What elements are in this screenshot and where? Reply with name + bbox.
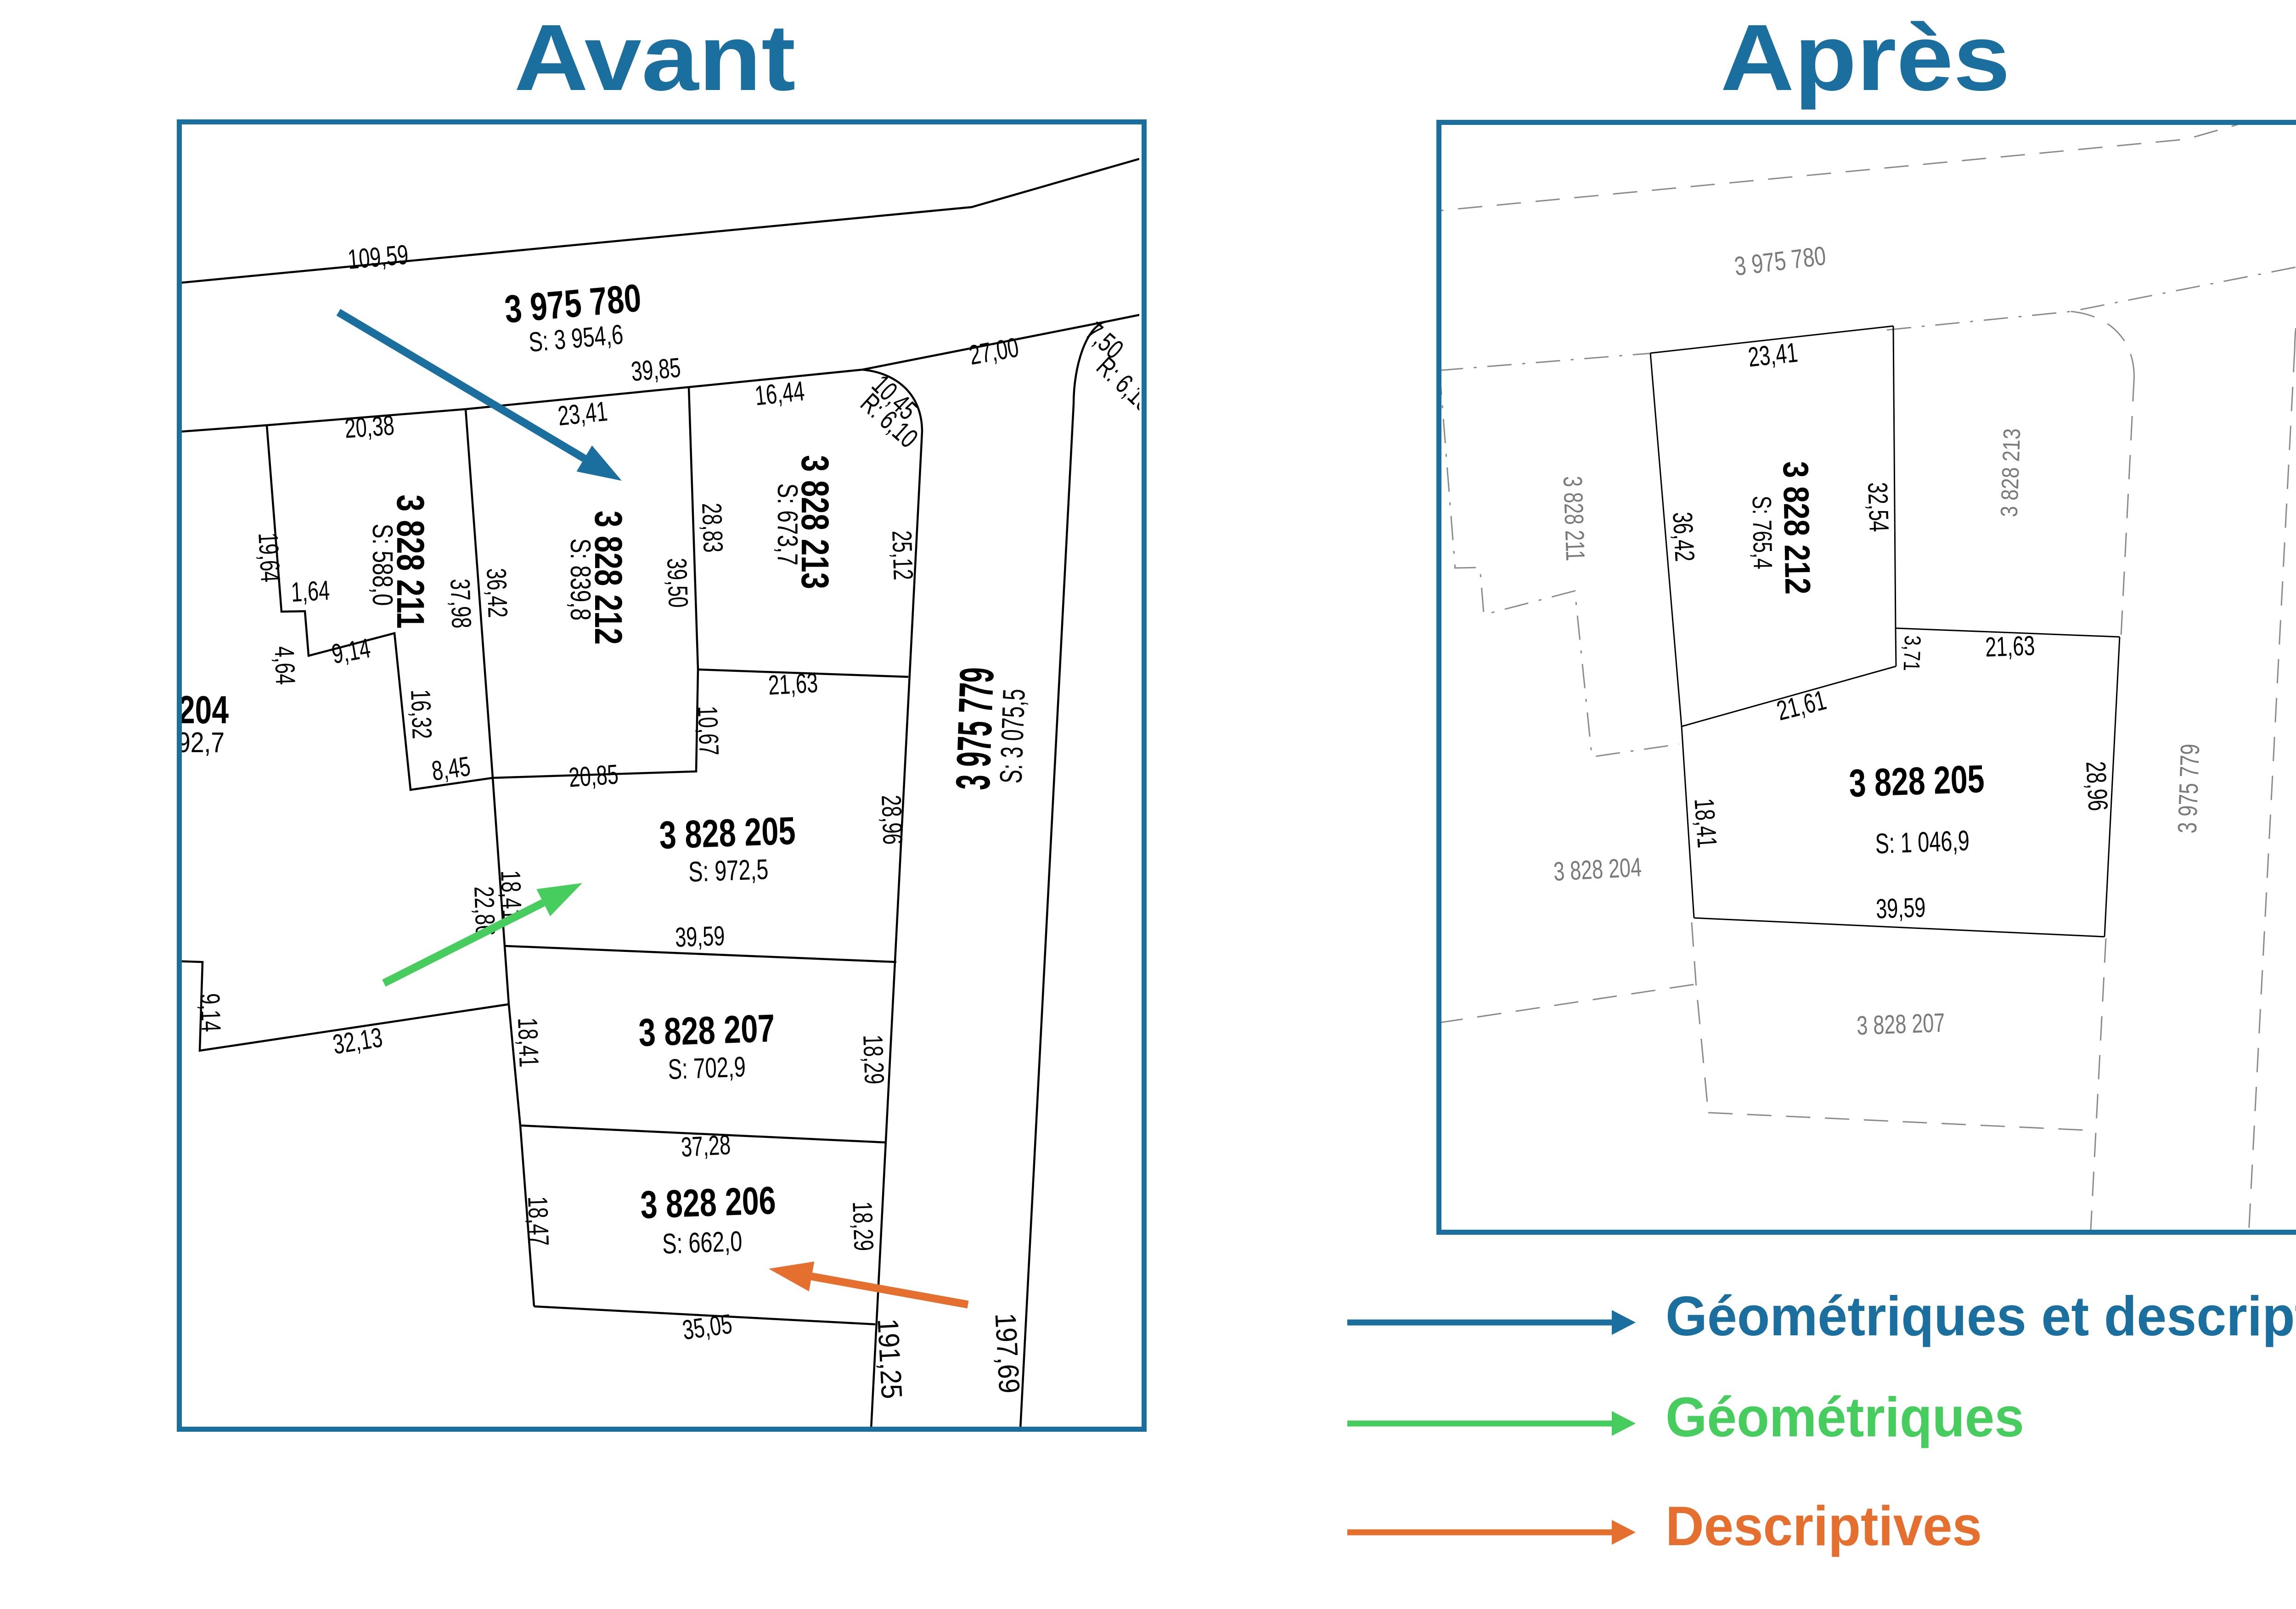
svg-text:S: 702,9: S: 702,9 <box>668 1051 746 1086</box>
svg-text:197,69: 197,69 <box>989 1312 1026 1395</box>
svg-text:S: 1 046,9: S: 1 046,9 <box>1875 825 1970 860</box>
svg-text:3 828 212: 3 828 212 <box>1775 461 1818 595</box>
svg-text:36,42: 36,42 <box>1667 511 1700 562</box>
svg-text:20,38: 20,38 <box>343 410 395 444</box>
svg-text:39,85: 39,85 <box>630 352 681 387</box>
svg-text:4,64: 4,64 <box>269 646 301 685</box>
svg-text:18,47: 18,47 <box>522 1196 555 1246</box>
svg-text:20,85: 20,85 <box>568 759 619 793</box>
svg-text:3 828 204: 3 828 204 <box>1553 852 1642 887</box>
svg-text:3 828 206: 3 828 206 <box>640 1179 777 1227</box>
svg-text:92,7: 92,7 <box>177 727 225 759</box>
svg-text:23,41: 23,41 <box>557 396 609 432</box>
svg-text:19,64: 19,64 <box>253 532 286 583</box>
svg-text:18,41: 18,41 <box>512 1017 545 1068</box>
svg-text:18,29: 18,29 <box>857 1034 890 1085</box>
svg-text:3 828 213: 3 828 213 <box>1996 428 2026 518</box>
svg-text:28,96: 28,96 <box>876 794 908 845</box>
svg-text:204: 204 <box>178 688 229 732</box>
svg-text:18,29: 18,29 <box>847 1201 879 1251</box>
svg-text:10,67: 10,67 <box>692 705 725 756</box>
svg-text:3 828 207: 3 828 207 <box>1856 1008 1945 1041</box>
svg-text:Géométriques: Géométriques <box>1666 1386 2024 1448</box>
svg-text:Avant: Avant <box>514 5 796 110</box>
svg-text:36,42: 36,42 <box>481 568 513 618</box>
svg-text:191,25: 191,25 <box>871 1318 908 1400</box>
svg-text:S: 765,4: S: 765,4 <box>1747 495 1778 569</box>
svg-text:3 828 207: 3 828 207 <box>638 1007 776 1055</box>
svg-text:3 828 211: 3 828 211 <box>1558 476 1590 562</box>
svg-text:3,71: 3,71 <box>1899 635 1926 672</box>
svg-text:Géométriques et descriptives: Géométriques et descriptives <box>1666 1285 2296 1347</box>
svg-text:S: 3 075,5: S: 3 075,5 <box>993 688 1031 784</box>
svg-text:32,54: 32,54 <box>1862 482 1895 532</box>
svg-text:3 828 205: 3 828 205 <box>1848 757 1985 805</box>
svg-text:37,98: 37,98 <box>445 578 477 629</box>
svg-text:39,50: 39,50 <box>661 557 694 608</box>
svg-text:3 975 779: 3 975 779 <box>2172 743 2206 834</box>
svg-text:Après: Après <box>1721 5 2010 110</box>
svg-text:9,14: 9,14 <box>195 993 227 1032</box>
svg-text:S: 588,0: S: 588,0 <box>366 524 398 606</box>
svg-text:21,63: 21,63 <box>767 667 818 701</box>
svg-text:16,32: 16,32 <box>405 689 438 739</box>
svg-text:16,44: 16,44 <box>754 376 806 411</box>
svg-text:3 828 205: 3 828 205 <box>658 809 796 857</box>
svg-text:109,59: 109,59 <box>347 239 410 275</box>
svg-text:18,41: 18,41 <box>1688 797 1722 849</box>
svg-text:S: 662,0: S: 662,0 <box>662 1226 743 1260</box>
svg-text:37,28: 37,28 <box>680 1129 731 1163</box>
svg-text:23,41: 23,41 <box>1747 337 1799 373</box>
svg-text:1,64: 1,64 <box>290 575 330 608</box>
svg-text:28,96: 28,96 <box>2080 760 2114 811</box>
svg-text:39,59: 39,59 <box>1875 892 1926 924</box>
svg-text:25,12: 25,12 <box>886 530 919 580</box>
svg-text:39,59: 39,59 <box>675 920 725 953</box>
svg-text:8,45: 8,45 <box>430 751 473 787</box>
svg-text:S: 839,8: S: 839,8 <box>564 539 596 621</box>
svg-text:21,63: 21,63 <box>1985 630 2035 663</box>
svg-text:28,83: 28,83 <box>696 502 729 553</box>
svg-text:S: 673,7: S: 673,7 <box>771 484 803 566</box>
svg-text:S: 972,5: S: 972,5 <box>688 854 769 888</box>
svg-text:Descriptives: Descriptives <box>1666 1495 1982 1557</box>
